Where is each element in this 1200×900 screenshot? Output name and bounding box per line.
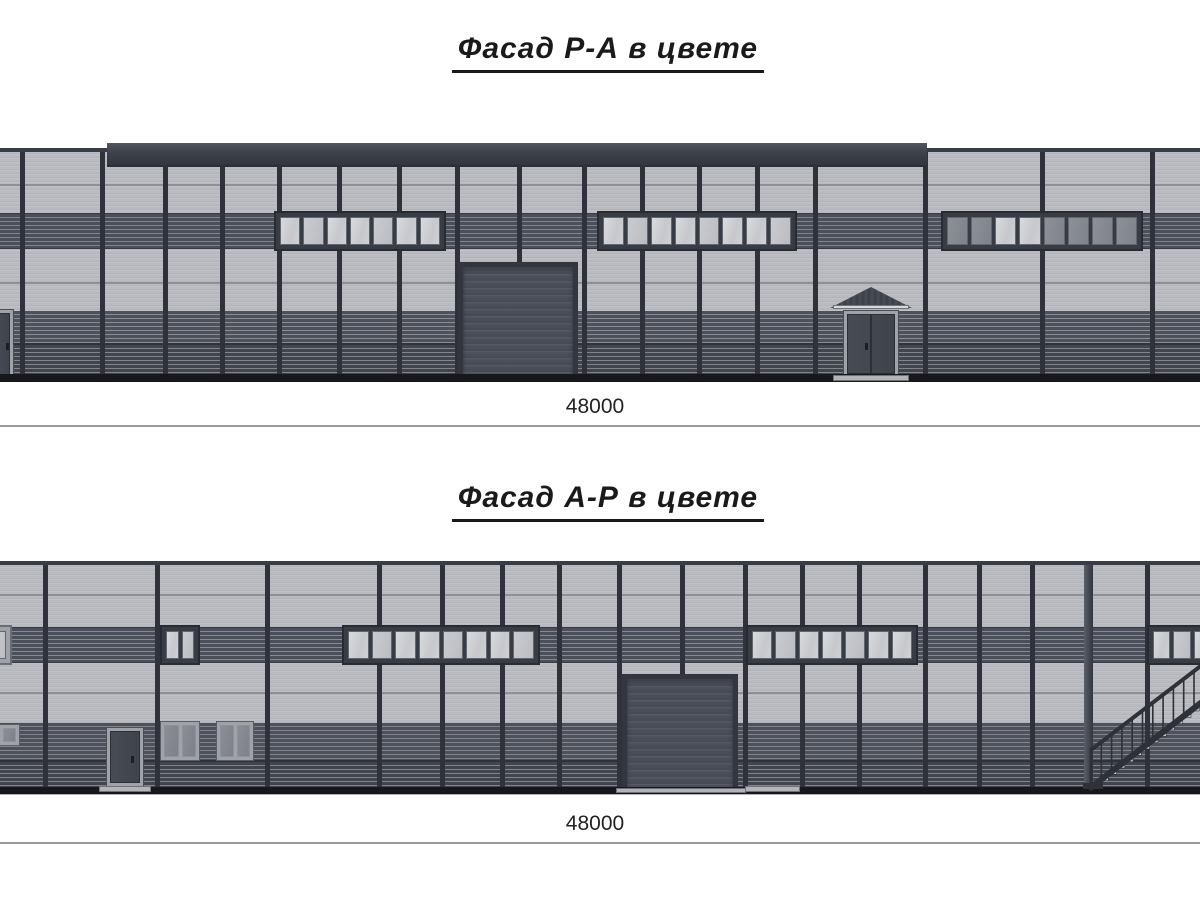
parapet-cap <box>0 561 1200 565</box>
window-pane <box>182 725 197 757</box>
window-pane <box>182 631 195 659</box>
window-pane <box>0 631 6 659</box>
small-window <box>216 721 254 761</box>
window-band <box>597 211 797 251</box>
wainscot-lower <box>0 760 1200 790</box>
threshold-pad <box>745 786 800 792</box>
window-pane <box>166 631 179 659</box>
window-band <box>941 211 1143 251</box>
window-pane <box>675 217 696 245</box>
window-pane <box>770 217 791 245</box>
column-mullion <box>220 150 225 378</box>
column-mullion <box>743 563 748 791</box>
column-mullion <box>100 150 105 378</box>
panel-seam <box>0 184 1200 186</box>
column-mullion <box>1040 150 1045 378</box>
window-pane <box>164 725 179 757</box>
window-pane <box>752 631 772 659</box>
facade-top-drawing <box>0 143 1200 383</box>
column-mullion <box>697 150 702 378</box>
facade-bottom-dimension-value: 48000 <box>0 812 1195 836</box>
window-pane <box>892 631 912 659</box>
window-pane <box>603 217 624 245</box>
column-mullion <box>582 150 587 378</box>
facade-top-title-text: Фасад Р-А в цвете <box>452 32 764 73</box>
facade-top-title: Фасад Р-А в цвете <box>8 32 1200 73</box>
window-band <box>160 625 200 665</box>
door-canopy-fascia <box>833 305 909 309</box>
column-mullion <box>337 150 342 378</box>
column-mullion <box>923 563 928 791</box>
window-pane <box>372 631 393 659</box>
window-pane <box>651 217 672 245</box>
window-pane <box>1019 217 1040 245</box>
ground-line <box>0 374 1200 382</box>
facade-bottom-title: Фасад А-Р в цвете <box>8 481 1200 522</box>
column-mullion <box>800 563 805 791</box>
window-pane <box>722 217 743 245</box>
window-pane <box>396 217 416 245</box>
window-pane <box>395 631 416 659</box>
facade-bottom-title-text: Фасад А-Р в цвете <box>452 481 764 522</box>
window-pane <box>995 217 1016 245</box>
window-pane <box>845 631 865 659</box>
window-pane <box>746 217 767 245</box>
window-pane <box>699 217 720 245</box>
column-mullion <box>277 150 282 378</box>
door-leaf <box>0 313 10 376</box>
facade-bottom-drawing <box>0 556 1200 798</box>
small-window <box>160 721 200 761</box>
column-mullion <box>163 150 168 378</box>
window-band <box>342 625 540 665</box>
facade-bottom-dimension-line <box>0 842 1200 844</box>
entry-door <box>843 310 899 378</box>
rollup-door <box>622 674 738 790</box>
window-pane <box>1116 217 1137 245</box>
facade-top-dimension-line <box>0 425 1200 427</box>
window-pane <box>822 631 842 659</box>
exterior-stair <box>1075 650 1200 796</box>
column-mullion <box>265 563 270 791</box>
column-mullion <box>20 150 25 378</box>
entry-door <box>0 309 14 380</box>
window-pane <box>350 217 370 245</box>
rollup-door <box>458 262 578 380</box>
door-handle <box>6 343 9 350</box>
window-pane <box>419 631 440 659</box>
door-handle <box>865 343 868 350</box>
window-pane <box>348 631 369 659</box>
door-leaf <box>847 314 895 374</box>
column-mullion <box>500 563 505 791</box>
parapet-fascia <box>107 143 927 167</box>
window-pane <box>327 217 347 245</box>
window-pane <box>490 631 511 659</box>
window-pane <box>237 725 251 757</box>
window-pane <box>1092 217 1113 245</box>
window-pane <box>280 217 300 245</box>
door-handle <box>131 756 134 763</box>
column-mullion <box>977 563 982 791</box>
column-mullion <box>813 150 818 378</box>
window-pane <box>971 217 992 245</box>
panel-seam <box>0 282 1200 284</box>
column-mullion <box>43 563 48 791</box>
door-leaf-divider <box>870 315 872 373</box>
facade-top-dimension-value: 48000 <box>0 395 1195 419</box>
column-mullion <box>640 150 645 378</box>
column-mullion <box>857 563 862 791</box>
window-band <box>274 211 446 251</box>
window-pane <box>466 631 487 659</box>
column-mullion <box>923 150 928 378</box>
threshold-pad <box>99 786 151 792</box>
window-pane <box>1044 217 1065 245</box>
window-pane <box>220 725 234 757</box>
window-pane <box>627 217 648 245</box>
entry-door <box>106 727 144 787</box>
threshold-pad <box>833 375 909 381</box>
panel-seam <box>0 692 1200 694</box>
window-pane <box>3 728 17 742</box>
column-mullion <box>1150 150 1155 378</box>
panel-seam <box>0 594 1200 596</box>
window-pane <box>799 631 819 659</box>
window-pane <box>513 631 534 659</box>
window-pane <box>303 217 323 245</box>
column-mullion <box>397 150 402 378</box>
ground-line <box>0 787 1200 794</box>
column-mullion <box>440 563 445 791</box>
wainscot-lower <box>0 343 1200 377</box>
window-pane <box>1068 217 1089 245</box>
wainscot-upper <box>0 311 1200 343</box>
small-window <box>0 724 20 746</box>
column-mullion <box>557 563 562 791</box>
window-pane <box>947 217 968 245</box>
column-mullion <box>377 563 382 791</box>
window-pane <box>868 631 888 659</box>
column-mullion <box>1030 563 1035 791</box>
window-pane <box>443 631 464 659</box>
window-pane <box>373 217 393 245</box>
window-band <box>0 625 12 665</box>
window-pane <box>775 631 795 659</box>
window-band <box>746 625 918 665</box>
threshold-pad <box>616 788 746 793</box>
window-pane <box>420 217 440 245</box>
door-leaf <box>110 731 140 783</box>
column-mullion <box>755 150 760 378</box>
